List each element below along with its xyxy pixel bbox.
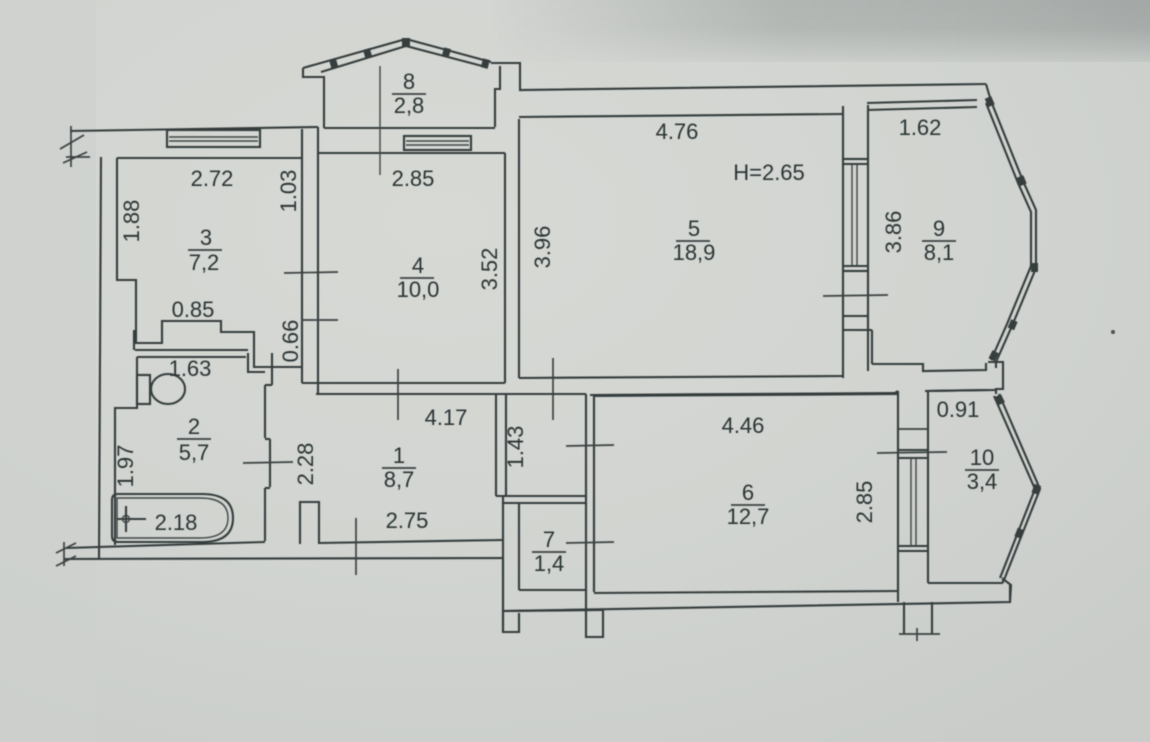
svg-text:12,7: 12,7 [727, 504, 770, 529]
svg-text:7,2: 7,2 [189, 250, 220, 275]
svg-text:8,1: 8,1 [924, 240, 955, 265]
svg-text:H=2.65: H=2.65 [733, 160, 805, 185]
svg-text:8,7: 8,7 [384, 467, 415, 492]
svg-text:8: 8 [403, 69, 415, 94]
svg-text:1.62: 1.62 [899, 115, 942, 140]
svg-text:2.18: 2.18 [155, 510, 198, 535]
svg-text:1.03: 1.03 [276, 170, 301, 213]
svg-text:4.17: 4.17 [425, 405, 468, 430]
svg-text:4.76: 4.76 [656, 119, 699, 144]
svg-text:2.75: 2.75 [386, 508, 429, 533]
svg-text:5: 5 [688, 216, 700, 241]
svg-text:3.96: 3.96 [530, 226, 555, 269]
svg-text:2.85: 2.85 [852, 481, 877, 524]
svg-text:9: 9 [933, 216, 945, 241]
svg-text:3: 3 [200, 225, 212, 250]
svg-text:1,4: 1,4 [534, 551, 565, 576]
svg-text:1.88: 1.88 [119, 200, 144, 243]
svg-text:2,8: 2,8 [394, 93, 425, 118]
svg-text:2.85: 2.85 [392, 166, 435, 191]
svg-text:3.86: 3.86 [881, 211, 906, 254]
svg-text:2: 2 [188, 414, 200, 439]
svg-text:0.66: 0.66 [278, 320, 303, 363]
svg-text:2.28: 2.28 [293, 443, 318, 486]
svg-text:2.72: 2.72 [191, 166, 234, 191]
svg-text:10,0: 10,0 [397, 277, 440, 302]
svg-text:7: 7 [543, 527, 555, 552]
svg-text:1.97: 1.97 [113, 445, 138, 488]
svg-text:0.85: 0.85 [172, 297, 215, 322]
svg-text:1.63: 1.63 [169, 356, 212, 381]
svg-text:0.91: 0.91 [937, 397, 980, 422]
svg-text:5,7: 5,7 [179, 440, 210, 465]
svg-text:3.52: 3.52 [477, 248, 502, 291]
svg-text:6: 6 [742, 480, 754, 505]
svg-text:4: 4 [412, 253, 424, 278]
svg-text:1: 1 [393, 443, 405, 468]
svg-text:18,9: 18,9 [673, 240, 716, 265]
svg-text:3,4: 3,4 [967, 469, 998, 494]
svg-text:4.46: 4.46 [722, 413, 765, 438]
svg-text:10: 10 [970, 445, 994, 470]
svg-text:1.43: 1.43 [503, 426, 528, 469]
